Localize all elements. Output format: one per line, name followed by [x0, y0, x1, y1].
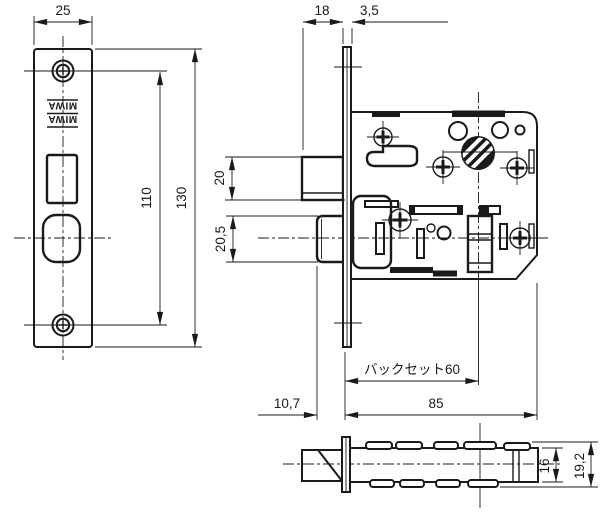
dim-case-height: 16: [537, 448, 563, 482]
dim-screw-pitch: 110: [139, 72, 160, 325]
latch-opening: [47, 155, 77, 203]
bottom-tab-right: [433, 271, 457, 277]
small-hole-a: [427, 224, 435, 232]
phillips-screw-2: [426, 150, 460, 184]
faceplate-bottom: [342, 437, 350, 492]
obround-slot: [367, 146, 417, 166]
dim-label-20-5: 20,5: [213, 226, 228, 252]
case-bottom-outline: [350, 448, 538, 482]
case-tabs-top: [366, 442, 530, 450]
dim-label-10-7: 10,7: [274, 396, 300, 411]
dim-label-16: 16: [537, 458, 552, 473]
edge-slot-top: [529, 150, 534, 173]
hole-circle-a: [449, 122, 467, 140]
dim-label-25: 25: [55, 3, 70, 18]
dim-label-18: 18: [314, 3, 329, 18]
latch-bolt-side: [302, 157, 343, 200]
hole-circle-c: [516, 126, 525, 135]
phillips-screw-1: [367, 121, 399, 153]
deadbolt-case-slot: [376, 223, 384, 254]
brand-stamp: MIWA MIWA: [47, 100, 78, 128]
drawing-canvas: MIWA MIWA 25 110 130: [0, 0, 611, 524]
bottom-view: [283, 423, 560, 508]
cam-follower: [468, 216, 492, 272]
dim-label-backset-60: バックセット60: [364, 362, 460, 377]
phillips-screw-5: [503, 221, 537, 255]
dim-deadbolt-height: 20,5: [213, 216, 318, 262]
vertical-slot-mid: [417, 229, 424, 258]
top-tab-left: [372, 112, 400, 118]
middle-slot-bar: [410, 206, 462, 214]
dim-case-depth: 85: [345, 283, 537, 420]
vertical-slot-right: [500, 224, 507, 249]
hole-circle-b: [492, 122, 508, 138]
dim-label-130: 130: [174, 187, 189, 210]
deadbolt-side: [317, 216, 343, 262]
dim-deadbolt-projection: 10,7: [258, 396, 317, 415]
dim-label-110: 110: [139, 187, 154, 209]
dim-label-19-2: 19,2: [572, 453, 587, 479]
bottom-tab-left: [390, 267, 433, 273]
dim-plate-thickness: 3,5: [352, 3, 448, 22]
left-bar-slot: [365, 201, 398, 207]
latch-bolt-bottom: [302, 450, 342, 481]
small-slot: [480, 206, 500, 214]
mortise-lock-technical-drawing: MIWA MIWA 25 110 130: [0, 0, 611, 524]
dim-label-85: 85: [428, 396, 443, 411]
dim-label-20: 20: [212, 170, 227, 185]
dim-label-3-5: 3,5: [360, 3, 379, 18]
dim-backset: バックセット60: [317, 266, 479, 420]
brand-stamp-line1: MIWA: [48, 113, 77, 124]
side-view: [258, 47, 548, 347]
brand-stamp-line2: MIWA: [48, 100, 77, 111]
deadbolt-opening: [43, 215, 80, 262]
